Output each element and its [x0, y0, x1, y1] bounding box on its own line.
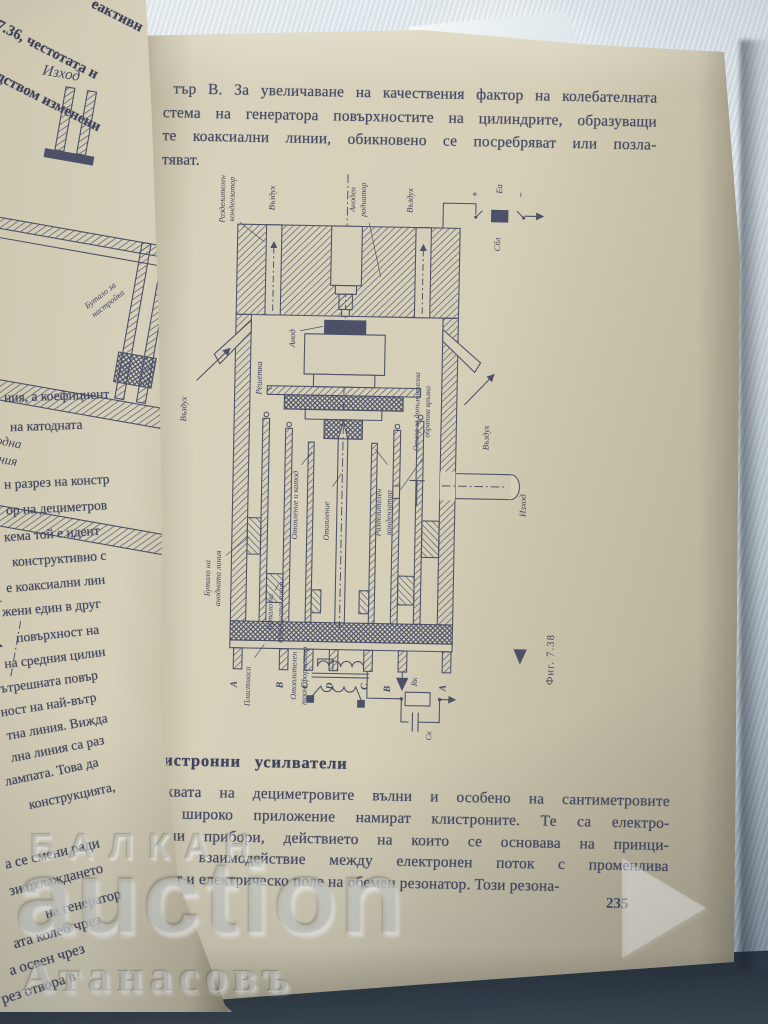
right-page-content: тър В. За увеличаване на качествения фак…: [110, 20, 747, 1020]
top-paragraph: тър В. За увеличаване на качествения фак…: [162, 77, 658, 180]
figure-label: Въздух: [267, 185, 277, 210]
terminal-label: D: [324, 682, 335, 690]
figure-label: анодната линия: [213, 550, 223, 606]
figure-label: Отопление и катод: [290, 471, 300, 540]
terminal-label: А: [438, 685, 449, 693]
left-text-fragment: конструкцията,: [27, 779, 116, 813]
figure-label: катодната линия: [276, 581, 286, 643]
terminal-label: В: [275, 681, 286, 689]
terminal-label: А: [229, 681, 240, 689]
figure-label: Въздух: [481, 425, 491, 450]
figure-label: +: [470, 191, 481, 197]
figure-label: радиатор: [358, 182, 368, 218]
figure-label: Сбл: [492, 237, 502, 251]
figure-label: −: [516, 192, 527, 198]
figure-label: Аноден: [348, 187, 357, 213]
figure-label: Изход: [518, 494, 528, 519]
figure-label: Rк: [410, 677, 419, 687]
figure-label: Ск: [424, 731, 433, 741]
figure-label: Еа: [494, 184, 504, 195]
figure-label: трансформатор: [299, 647, 309, 705]
page-number: 235: [606, 896, 629, 913]
right-page: тър В. За увеличаване на качествения фак…: [128, 22, 746, 1010]
figure-label: Решетка: [253, 361, 264, 395]
left-text-fragment: на катодната: [10, 417, 83, 436]
terminal-label: В: [382, 685, 393, 693]
terminal-label: С: [359, 683, 370, 690]
terminal-label: С: [300, 682, 311, 689]
section-heading: Клистронни усилватели: [140, 750, 347, 774]
figure-label: Бутало на: [203, 560, 213, 597]
figure-7-38: Разделителен кондензатор Въздух Аноден р…: [161, 165, 582, 748]
figure-label: линия: [0, 449, 19, 469]
figure-label: Пластмаса: [243, 666, 253, 707]
figure-label: Бутало на: [265, 594, 275, 631]
bottom-paragraph: В обхвата на дециметровите вълни и особе…: [120, 780, 670, 899]
book-photo: тър В. За увеличаване на качествения фак…: [0, 0, 768, 1024]
figure-label: обратна връзка: [422, 386, 432, 438]
figure-label: Разделителен: [217, 175, 227, 224]
figure-label: кондензатор: [227, 177, 237, 222]
figure-label: Въздух: [178, 396, 188, 421]
figure-label: Отопление: [322, 501, 332, 540]
page-edge-shadow: [740, 40, 768, 970]
figure-caption: Фиг. 7.38: [545, 634, 557, 685]
figure-label: кондензатор: [384, 490, 394, 535]
figure-label: Анод: [287, 328, 297, 348]
figure-label: Отвор за допълнителна: [412, 372, 423, 451]
figure-label: Изход: [40, 62, 81, 85]
flap-text-line: еактивн: [88, 0, 145, 36]
figure-label: Разделителен: [373, 489, 383, 538]
figure-label: Отоплителен: [289, 652, 299, 700]
figure-label: Въздух: [405, 188, 415, 213]
